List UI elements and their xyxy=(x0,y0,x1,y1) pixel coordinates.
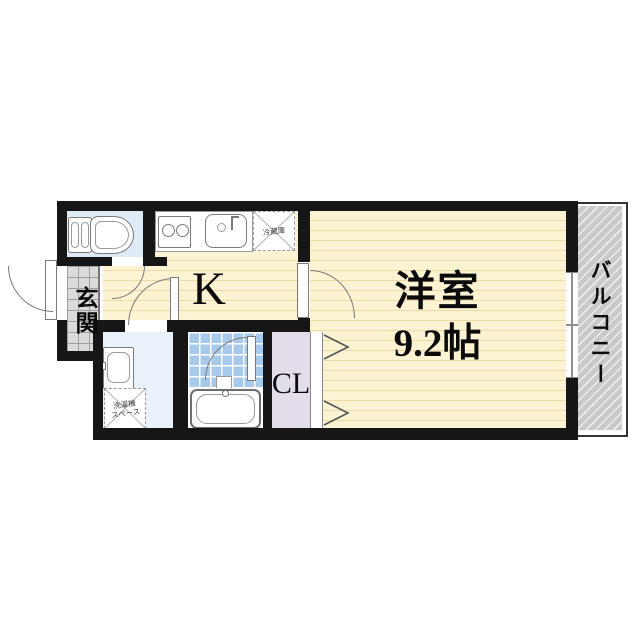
wall xyxy=(167,320,310,332)
sink-faucet-icon xyxy=(231,217,233,230)
bathroom-step xyxy=(216,376,232,388)
kitchen-label: K xyxy=(184,260,234,318)
wall xyxy=(57,257,112,266)
room-door-leaf xyxy=(297,263,309,318)
wall xyxy=(566,378,578,440)
toilet-door-gap xyxy=(112,257,145,266)
wall xyxy=(298,318,310,332)
stove-burner-icon xyxy=(176,224,189,237)
floor-plan: 冷蔵庫 洗濯機 スペース 玄関 K 洋室 9.2 xyxy=(0,0,640,640)
refrigerator-label: 冷蔵庫 xyxy=(250,208,297,253)
wall xyxy=(298,211,310,262)
bathroom-door-leaf xyxy=(247,336,256,381)
washbasin-bowl-icon xyxy=(107,352,130,383)
bathtub-faucet-icon xyxy=(222,390,229,397)
sink-faucet-icon xyxy=(231,216,239,218)
balcony-window-mid-rail xyxy=(566,324,578,326)
entrance-door-swing xyxy=(8,266,53,312)
bathtub-inner-icon xyxy=(196,394,255,424)
wall xyxy=(145,257,167,266)
wall xyxy=(57,201,67,260)
main-room-size-label: 9.2帖 xyxy=(330,318,545,362)
stove-burner-icon xyxy=(162,224,175,237)
main-room-label: 洋室 xyxy=(330,264,545,310)
wall xyxy=(173,332,188,428)
wall xyxy=(57,201,578,211)
closet-label: CL xyxy=(268,366,314,402)
washroom-door-leaf xyxy=(170,277,179,324)
balcony-label: バルコニー xyxy=(587,236,613,411)
entrance-door-gap xyxy=(57,260,67,320)
entrance-label: 玄関 xyxy=(70,280,98,342)
wall xyxy=(93,428,578,440)
washer-space-label: 洗濯機 スペース xyxy=(101,385,148,431)
wall xyxy=(566,201,578,272)
kitchen-sink-icon xyxy=(205,214,247,248)
toilet-tank-button-icon xyxy=(81,222,89,248)
toilet-seat-icon xyxy=(95,221,129,249)
sink-drain-icon xyxy=(217,223,226,232)
toilet-tank-button-icon xyxy=(71,222,79,248)
